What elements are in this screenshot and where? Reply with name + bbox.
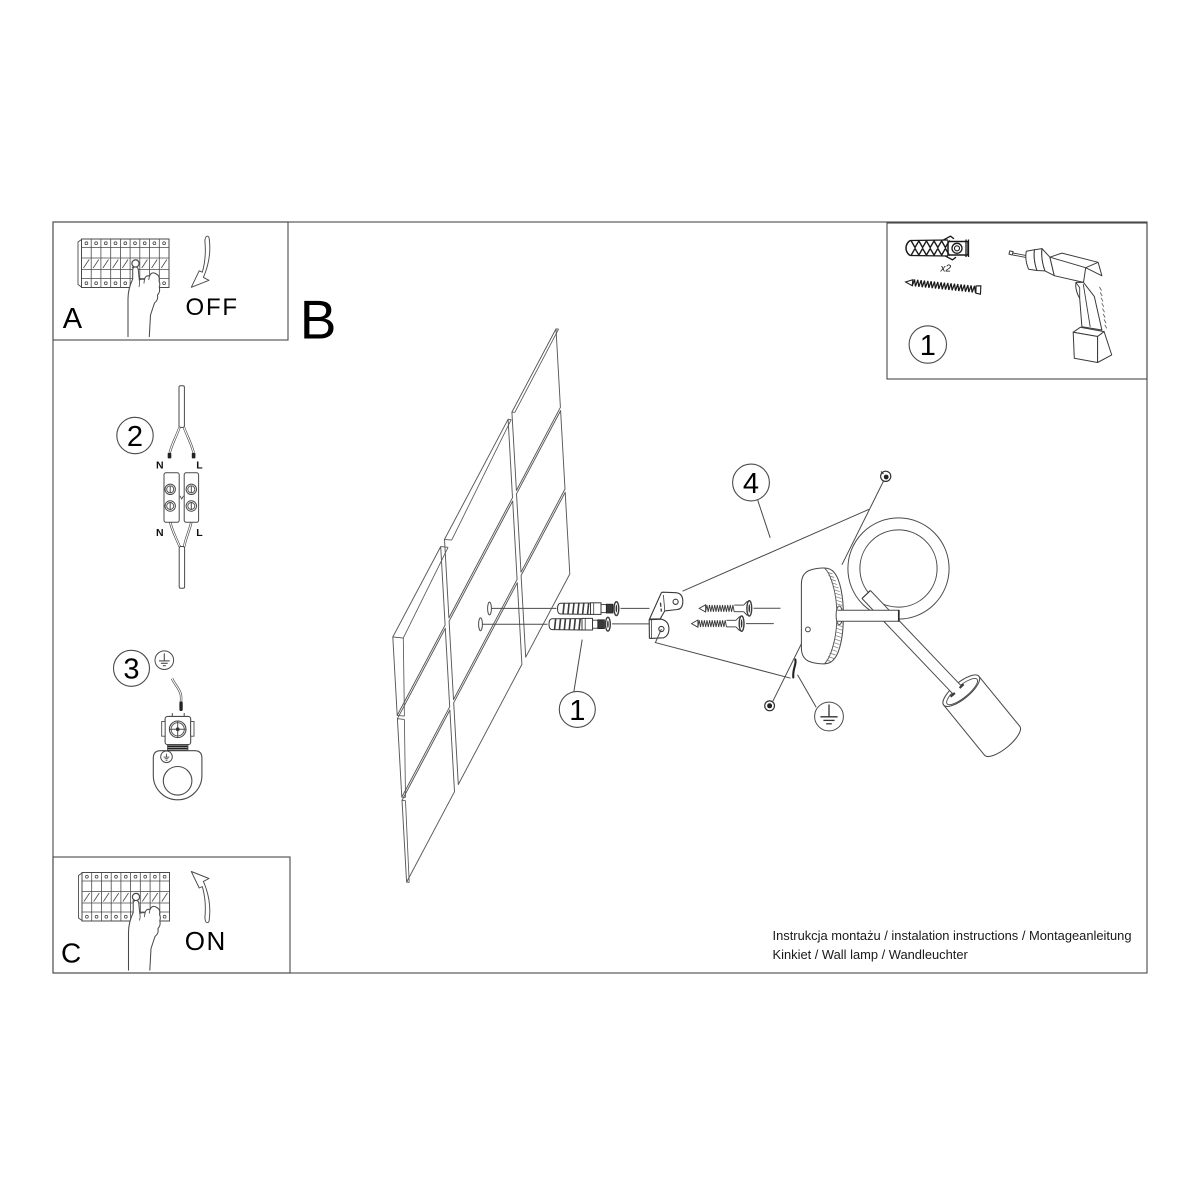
svg-text:1: 1: [920, 330, 936, 362]
svg-text:C: C: [61, 938, 81, 969]
svg-text:3: 3: [123, 654, 139, 686]
svg-text:ON: ON: [185, 926, 227, 956]
svg-text:Kinkiet / Wall lamp / Wandleuc: Kinkiet / Wall lamp / Wandleuchter: [773, 947, 969, 962]
svg-text:1: 1: [569, 695, 585, 727]
svg-text:x2: x2: [940, 263, 952, 274]
svg-text:B: B: [300, 288, 337, 350]
svg-text:Instrukcja montażu / instalati: Instrukcja montażu / instalation instruc…: [773, 928, 1132, 943]
svg-text:N: N: [156, 460, 164, 472]
svg-text:A: A: [63, 303, 83, 335]
svg-text:2: 2: [127, 421, 143, 453]
svg-text:OFF: OFF: [186, 294, 239, 321]
svg-text:4: 4: [743, 468, 759, 500]
svg-text:N: N: [156, 527, 164, 539]
svg-text:L: L: [196, 527, 203, 539]
svg-text:L: L: [196, 460, 203, 472]
